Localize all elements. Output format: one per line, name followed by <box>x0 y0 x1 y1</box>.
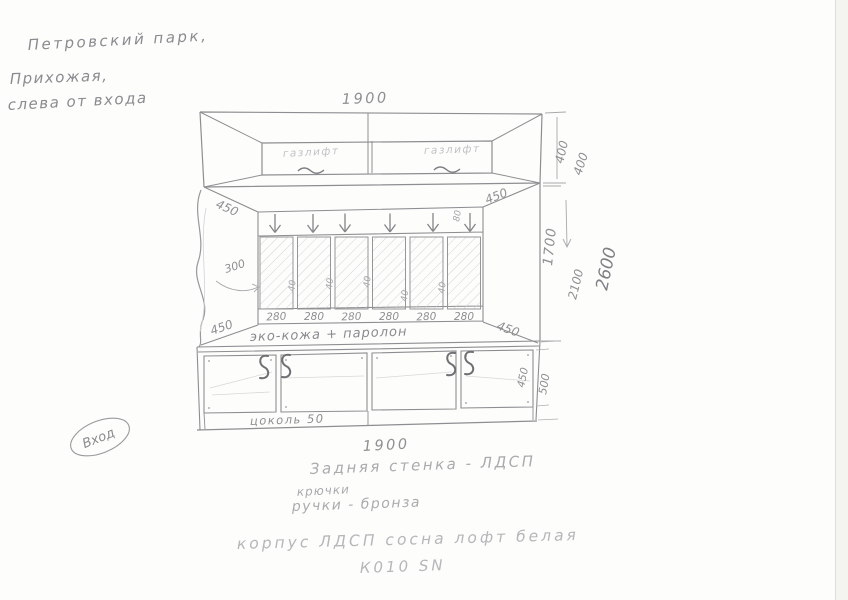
middle-section-outline <box>201 183 540 345</box>
upper-cabinet-outer-box <box>200 112 542 187</box>
gap-dimension: 40 <box>362 275 373 288</box>
right-dim-addend: 400 <box>571 150 592 176</box>
upper-cabinet-perspective-lines <box>200 112 542 187</box>
left-door-handle-icon <box>298 168 324 173</box>
scanned-sketch-page: Петровский парк, Прихожая, слева от вход… <box>0 0 848 600</box>
gas-lift-label-left: газлифт <box>283 145 340 160</box>
padded-panel <box>335 237 368 309</box>
upper-cabinet-outline <box>200 112 542 187</box>
upholstered-panels <box>260 237 481 309</box>
panel-width-dimension: 280 <box>304 311 324 323</box>
hook-icon <box>428 213 439 232</box>
door-corner-dots <box>208 354 529 409</box>
back-wall-note: Задняя стенка - ЛДСП <box>310 452 536 478</box>
hook-icon <box>385 214 396 233</box>
padded-panel <box>410 237 443 309</box>
lower-door-2 <box>281 353 367 412</box>
location-note-line3: слева от входа <box>7 89 148 114</box>
wall-break-wavy-line <box>197 190 205 347</box>
location-note-line2: Прихожая, <box>10 67 109 88</box>
handles-note: ручки - бронза <box>291 494 422 515</box>
lower-cabinet-sides <box>197 341 540 430</box>
hook-gap-dimension: 80 <box>452 209 464 222</box>
panel-width-dimension: 280 <box>416 310 437 323</box>
gas-lift-label-right: газлифт <box>424 143 481 157</box>
gap-dimension: 40 <box>287 279 298 292</box>
gap-dimension: 40 <box>437 281 448 294</box>
decor-code-note: К010 SN <box>360 556 446 577</box>
shelf-depth-arrow-icon <box>216 281 259 292</box>
upper-cabinet-center-divider <box>368 113 372 174</box>
panel-width-dimension: 280 <box>266 310 287 323</box>
wall-break-wavy-line-2 <box>200 208 206 332</box>
lower-cabinet-bottom-edge <box>197 421 537 430</box>
panel-width-dimension: 280 <box>341 311 362 324</box>
bottom-width-dimension: 1900 <box>362 437 410 455</box>
depth-dimension-top-right: 450 <box>483 185 510 206</box>
right-dim-subtotal: 2100 <box>565 267 586 300</box>
lower-door-1 <box>204 355 276 413</box>
s-handle-icon <box>465 352 473 375</box>
s-handle-icon <box>282 355 290 378</box>
depth-dimension-bottom-right: 450 <box>495 319 522 340</box>
hook-icon <box>465 213 476 232</box>
shelf-depth-dimension: 300 <box>223 257 247 276</box>
padded-panel <box>448 237 481 309</box>
door-sketch-shading <box>210 372 530 395</box>
plinth-label: цоколь 50 <box>250 411 325 428</box>
right-door-handle-icon <box>434 167 460 172</box>
upholstery-note: эко-кожа + паролон <box>250 325 408 345</box>
hook-icon <box>270 214 281 233</box>
entrance-label: Вход <box>80 426 117 452</box>
padded-panel <box>260 237 293 309</box>
bench-height-dimension: 450 <box>515 366 531 388</box>
gap-dimension: 40 <box>325 277 336 290</box>
hook-icon <box>308 214 319 233</box>
body-material-note: корпус ЛДСП сосна лофт белая <box>237 526 579 553</box>
lower-door-3 <box>372 351 456 410</box>
depth-dimension-top-left: 450 <box>214 197 241 219</box>
hook-icon <box>340 214 351 233</box>
panel-width-dimension: 280 <box>379 311 399 323</box>
upper-height-dimension: 400 <box>552 139 571 165</box>
coat-hooks <box>270 213 476 233</box>
entrance-mark: Вход <box>65 411 134 464</box>
material-notes: Задняя стенка - ЛДСП крючки ручки - брон… <box>237 452 579 577</box>
padded-panel <box>298 237 331 309</box>
right-dim-total: 2600 <box>592 246 621 292</box>
gap-dimension: 40 <box>400 289 411 302</box>
right-dim-arrow-icon <box>563 200 571 247</box>
bench-total-height-dimension: 500 <box>536 373 552 396</box>
middle-depth-diagonals <box>201 183 540 345</box>
scan-edge-shading <box>836 0 848 600</box>
lower-cabinet-outline <box>197 341 540 430</box>
panel-width-dimension: 280 <box>454 311 474 323</box>
middle-height-dimension: 1700 <box>540 227 560 267</box>
sketch-canvas: Петровский парк, Прихожая, слева от вход… <box>0 0 848 600</box>
location-note: Петровский парк, Прихожая, слева от вход… <box>7 27 208 114</box>
location-note-line1: Петровский парк, <box>27 27 208 54</box>
top-width-dimension: 1900 <box>342 90 389 108</box>
